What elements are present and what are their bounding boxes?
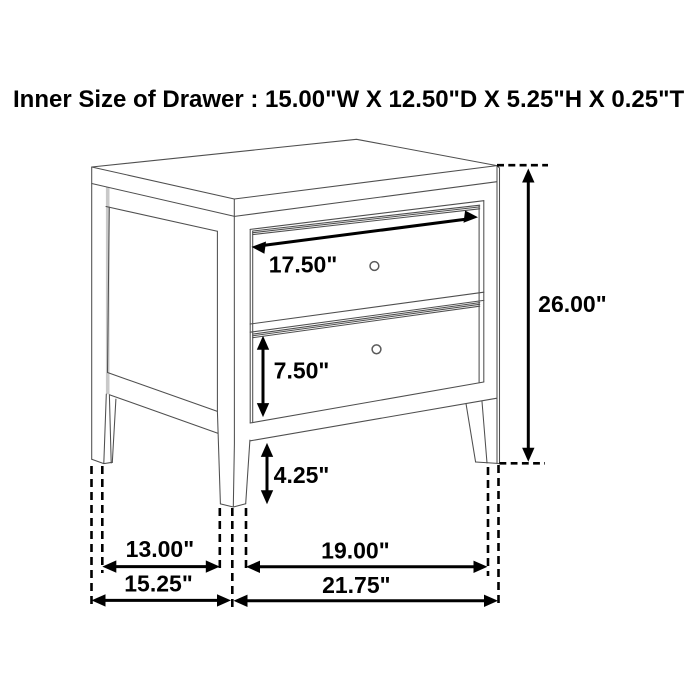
svg-text:21.75": 21.75" (322, 572, 390, 598)
svg-text:Inner Size of Drawer : 15.00"W: Inner Size of Drawer : 15.00"W X 12.50"D… (13, 86, 684, 113)
svg-text:19.00": 19.00" (321, 538, 389, 564)
svg-text:17.50": 17.50" (269, 252, 337, 278)
svg-text:26.00": 26.00" (538, 291, 606, 317)
svg-text:15.25": 15.25" (124, 571, 192, 597)
svg-text:4.25": 4.25" (274, 462, 330, 488)
svg-text:7.50": 7.50" (274, 358, 330, 384)
svg-text:13.00": 13.00" (126, 536, 194, 562)
